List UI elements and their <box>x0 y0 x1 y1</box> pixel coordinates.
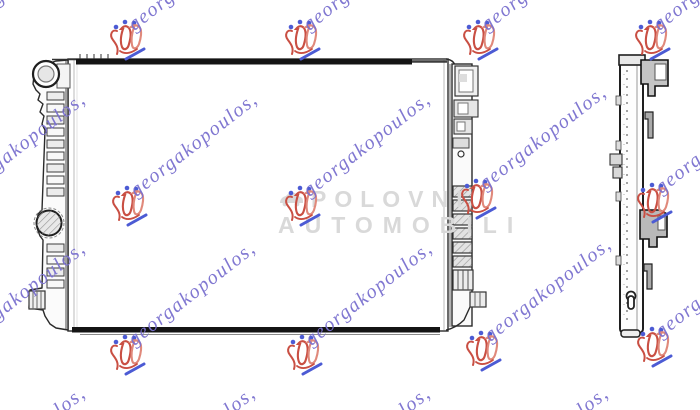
radiator-side-view <box>610 55 668 337</box>
outlet-pipe <box>29 291 45 309</box>
right-tank-top-tab <box>455 66 478 96</box>
side-view-keyhole-slot <box>627 292 636 310</box>
right-tank-lower-block <box>453 270 473 290</box>
left-tank <box>29 60 70 330</box>
polovni-line2: AUTOMOBILI <box>278 213 523 237</box>
side-view-left-tab-2 <box>613 167 622 178</box>
side-view-foot <box>621 330 640 337</box>
radiator-product-image: POLOVNI AUTOMOBILI georgakopoulos, <box>0 0 700 410</box>
polovni-line1: POLOVNI <box>311 187 471 211</box>
left-tank-ribs <box>47 92 64 288</box>
side-view-upper-hook <box>645 112 653 138</box>
car-icon <box>278 191 304 207</box>
right-tank-bottom-tab <box>470 292 486 307</box>
polovni-automobili-watermark: POLOVNI AUTOMOBILI <box>278 187 523 237</box>
side-view-lower-hook <box>644 264 652 289</box>
side-view-left-tab-1 <box>610 154 622 165</box>
core-top-band <box>76 59 412 65</box>
top-edge-ticks <box>80 54 108 59</box>
core-bottom-band <box>72 327 440 333</box>
